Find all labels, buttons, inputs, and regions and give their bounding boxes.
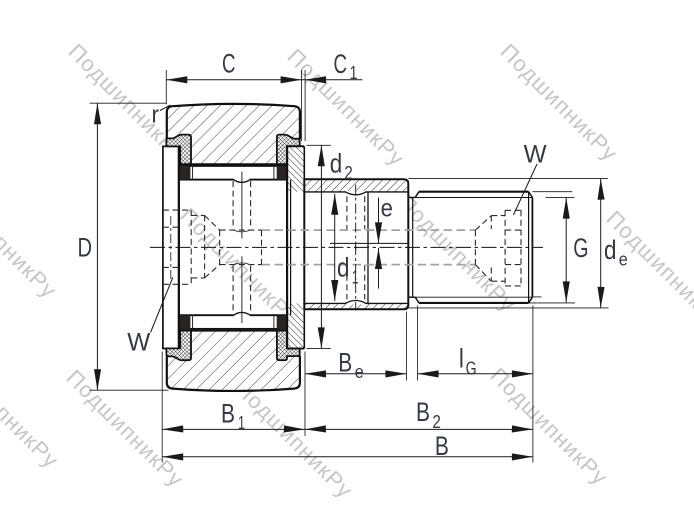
svg-text:r: r: [152, 102, 160, 129]
svg-text:D: D: [78, 233, 93, 263]
svg-text:B: B: [416, 397, 430, 427]
svg-text:1: 1: [350, 63, 358, 83]
svg-text:1: 1: [238, 413, 245, 433]
svg-text:2: 2: [432, 412, 441, 432]
svg-text:G: G: [466, 359, 477, 379]
svg-text:2: 2: [344, 163, 353, 183]
svg-text:l: l: [459, 344, 464, 374]
svg-text:d: d: [604, 235, 617, 265]
svg-text:e: e: [355, 362, 364, 382]
svg-text:1: 1: [352, 267, 359, 287]
svg-text:e: e: [619, 250, 628, 270]
svg-text:B: B: [221, 399, 235, 429]
svg-text:W: W: [524, 141, 547, 169]
svg-text:B: B: [338, 347, 352, 377]
svg-text:e: e: [381, 194, 393, 222]
svg-text:d: d: [337, 253, 350, 283]
svg-text:d: d: [330, 148, 343, 178]
svg-text:C: C: [222, 49, 236, 79]
svg-text:C: C: [334, 49, 348, 79]
svg-text:G: G: [573, 233, 588, 263]
svg-text:W: W: [127, 328, 150, 356]
svg-text:B: B: [435, 431, 449, 461]
